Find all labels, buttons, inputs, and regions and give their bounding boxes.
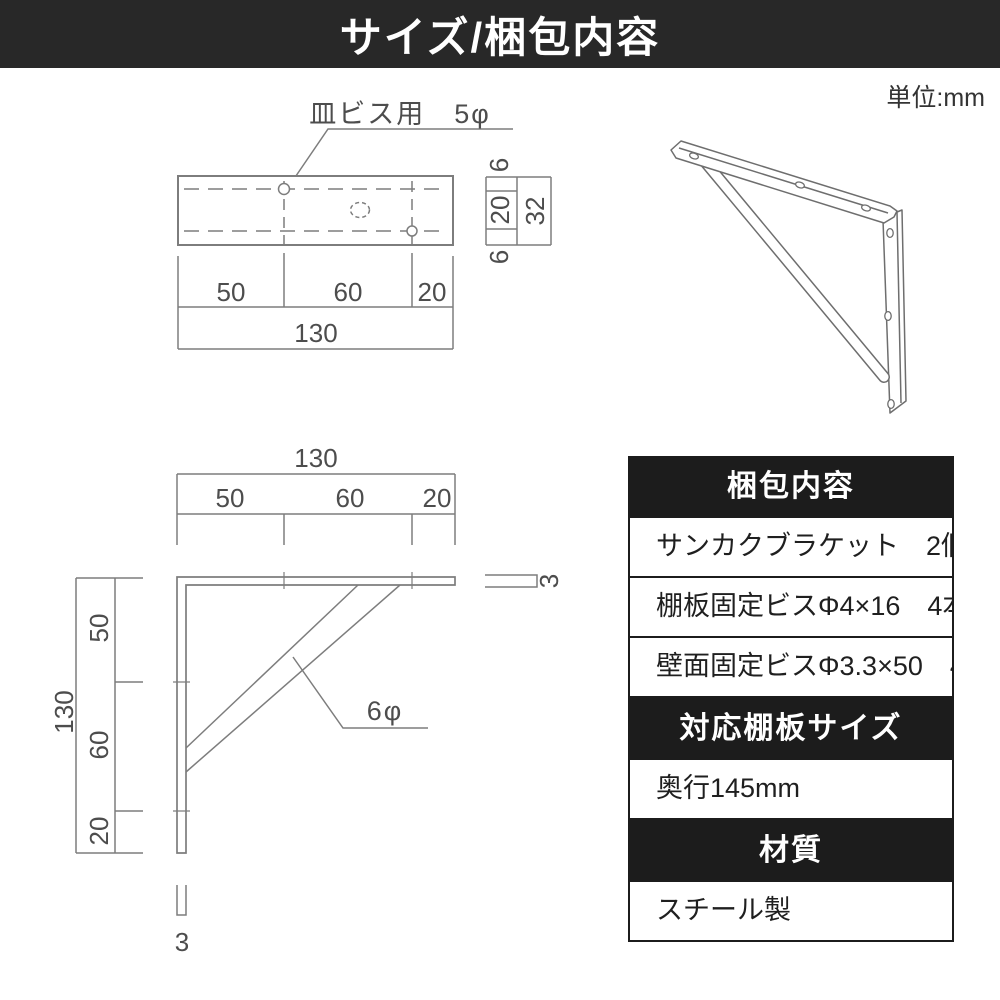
table-row: 棚板固定ビスΦ4×16 4本 [628, 578, 954, 638]
dim-label-50-top: 50 [216, 483, 245, 513]
table-section-header: 梱包内容 [628, 456, 954, 518]
thickness-label-right: 3 [534, 574, 564, 588]
rod-diameter-label: 6φ [367, 696, 404, 726]
table-section-header: 対応棚板サイズ [628, 698, 954, 760]
dim-label-20: 20 [418, 277, 447, 307]
dim-label-130-left: 130 [49, 690, 79, 733]
table-row: 壁面固定ビスΦ3.3×50 4本 [628, 638, 954, 698]
table-row: サンカクブラケット 2個 [628, 518, 954, 578]
profile-dim-32: 32 [520, 197, 550, 226]
brace-line [186, 585, 358, 748]
thickness-indicators [177, 575, 537, 915]
table-row: 奥行145mm [628, 760, 954, 820]
profile-dim-6-top: 6 [484, 158, 514, 172]
dim-label-50-left: 50 [84, 614, 114, 643]
top-view-drawing: 皿ビス用 5φ 50 60 20 130 6 20 6 32 [60, 85, 600, 365]
dim-label-130: 130 [294, 318, 337, 348]
profile-dim-6-bottom: 6 [484, 250, 514, 264]
dim-label-130-top: 130 [294, 443, 337, 473]
side-view-drawing: 130 50 60 20 130 50 60 20 6φ 3 3 [40, 445, 600, 975]
dim-label-60-left: 60 [84, 731, 114, 760]
bracket-side-outline [173, 572, 455, 853]
dim-label-60: 60 [334, 277, 363, 307]
countersunk-hole [279, 184, 290, 195]
countersunk-hole [407, 226, 417, 236]
dim-label-50: 50 [217, 277, 246, 307]
table-row: スチール製 [628, 882, 954, 942]
dim-label-20-left: 20 [84, 817, 114, 846]
brace-line [186, 585, 400, 772]
dim-label-20-top: 20 [423, 483, 452, 513]
page-title: サイズ/梱包内容 [340, 4, 660, 65]
bracket-illustration [640, 110, 940, 440]
unit-label: 単位:mm [810, 78, 985, 114]
table-section-header: 材質 [628, 820, 954, 882]
wall-plate [883, 210, 906, 413]
spec-table: 梱包内容サンカクブラケット 2個棚板固定ビスΦ4×16 4本壁面固定ビスΦ3.3… [628, 456, 954, 942]
screw-hole-label: 皿ビス用 5φ [309, 99, 491, 129]
profile-dim-20: 20 [485, 196, 515, 225]
dim-label-60-top: 60 [336, 483, 365, 513]
thickness-label-bottom: 3 [175, 927, 189, 957]
shelf-arm [671, 141, 897, 223]
rod-diameter-leader [293, 657, 428, 728]
title-bar: サイズ/梱包内容 [0, 0, 1000, 68]
top-view-outline [178, 129, 513, 259]
